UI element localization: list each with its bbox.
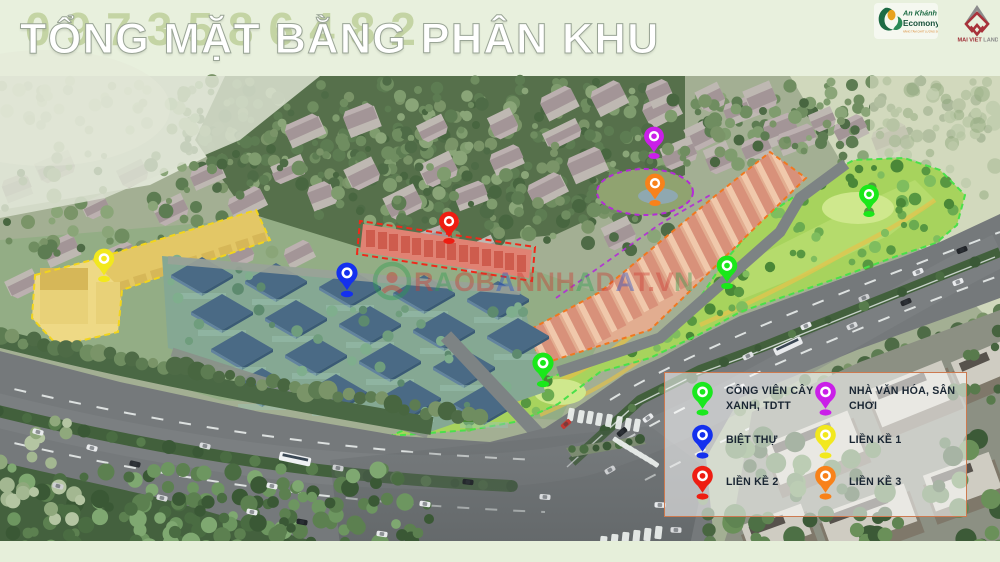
svg-text:MAI VIET LAND: MAI VIET LAND	[958, 38, 999, 44]
svg-text:RAOBANNHADAT.VN: RAOBANNHADAT.VN	[414, 267, 694, 297]
svg-text:NÂNG TẦM CHẤT LƯỢNG SỐNG: NÂNG TẦM CHẤT LƯỢNG SỐNG	[903, 29, 938, 34]
svg-text:Ecomony: Ecomony	[903, 19, 938, 28]
svg-text:An Khánh: An Khánh	[902, 9, 938, 18]
